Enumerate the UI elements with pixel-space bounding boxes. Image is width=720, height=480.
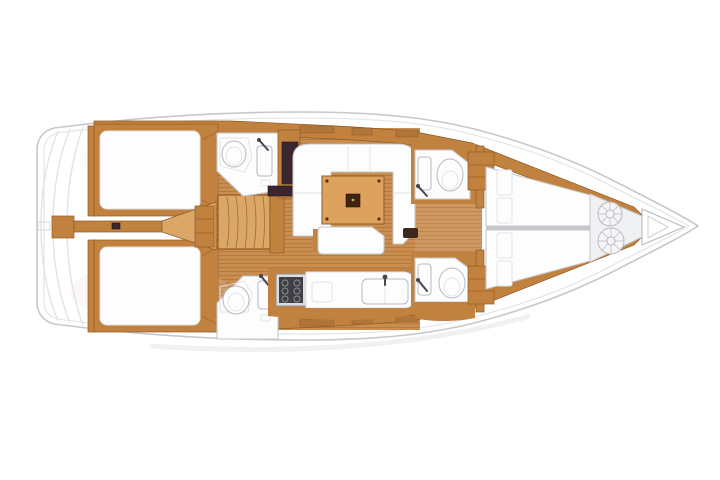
washbasin: [418, 157, 431, 190]
yacht-floor-plan: [0, 0, 720, 480]
washbasin: [257, 146, 272, 176]
beam-handle: [112, 223, 120, 229]
toilet-icon: [439, 268, 465, 298]
washbasin: [418, 264, 431, 295]
berth-cushion: [497, 233, 512, 258]
berth-centerline-divider: [486, 226, 590, 230]
forward-head-starboard: [411, 252, 476, 321]
shower-tray: [222, 141, 246, 167]
aft-cabin-port: [94, 124, 218, 216]
berth-cushion: [497, 261, 512, 286]
shower-tray: [223, 286, 249, 314]
galley: [268, 268, 420, 320]
keel-beam-block: [52, 216, 74, 238]
saloon-table: [322, 176, 384, 224]
aft-cabin-starboard: [94, 240, 218, 332]
deck-hatch-fan: [598, 202, 622, 226]
berth-cushion: [497, 198, 512, 223]
double-berth: [100, 247, 200, 325]
floor-plan-canvas: [0, 0, 720, 480]
sink-icon: [362, 275, 408, 304]
deck-locker: [300, 126, 334, 133]
companionway-wall: [270, 193, 284, 253]
companionway-stairs: [218, 195, 270, 249]
toilet-icon: [437, 159, 463, 191]
double-berth: [100, 131, 200, 209]
stove-icon: [276, 274, 306, 306]
deck-locker: [352, 128, 372, 135]
nav-dresser: [195, 206, 214, 247]
side-shelf: [403, 228, 418, 238]
deck-locker: [300, 319, 334, 326]
saloon-bench: [318, 227, 384, 254]
head-cabinet: [415, 302, 475, 321]
deck-hatch-fan: [598, 228, 624, 254]
forward-head-port: [411, 144, 476, 204]
deck-locker: [396, 130, 418, 137]
berth-cushion: [497, 170, 512, 195]
